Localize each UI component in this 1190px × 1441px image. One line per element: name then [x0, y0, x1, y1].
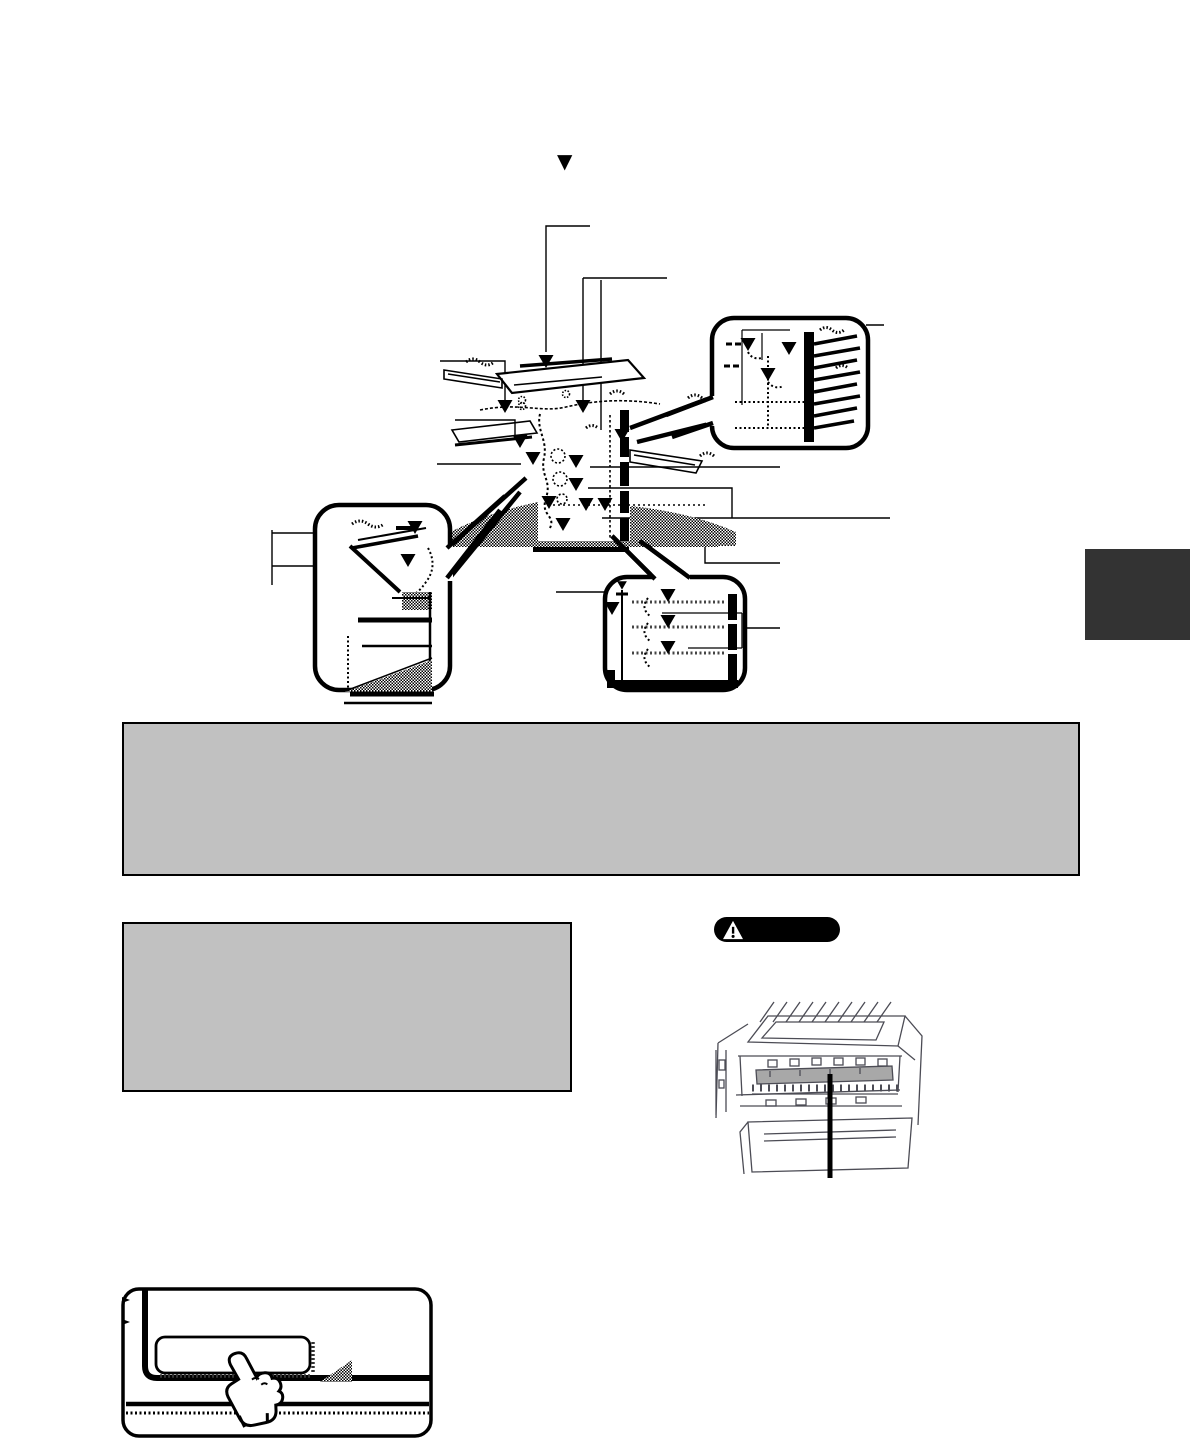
caution-label	[714, 917, 840, 942]
heading-bullet-icon: ▼	[557, 149, 573, 173]
primary-note-box	[122, 722, 1080, 876]
finisher-tray-detail-inset	[666, 318, 868, 448]
warning-triangle-icon	[722, 920, 744, 940]
misfeed-diagram-art: ▼	[0, 0, 1190, 1441]
paper-tray-detail-inset	[605, 536, 745, 690]
chapter-tab	[1085, 549, 1190, 640]
touch-panel-with-hand	[122, 1289, 431, 1436]
fusing-area-illustration	[716, 1002, 922, 1178]
secondary-note-box	[122, 922, 572, 1092]
manual-page: ▼	[0, 0, 1190, 1441]
